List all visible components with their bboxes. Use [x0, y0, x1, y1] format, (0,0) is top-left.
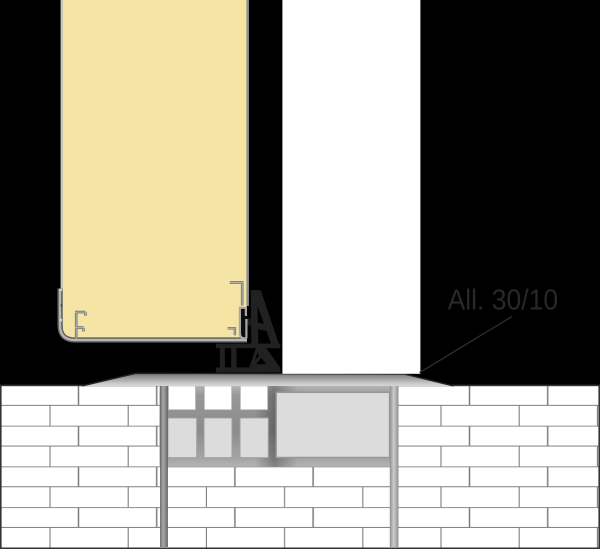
svg-text:All. 30/10: All. 30/10 [448, 284, 558, 316]
